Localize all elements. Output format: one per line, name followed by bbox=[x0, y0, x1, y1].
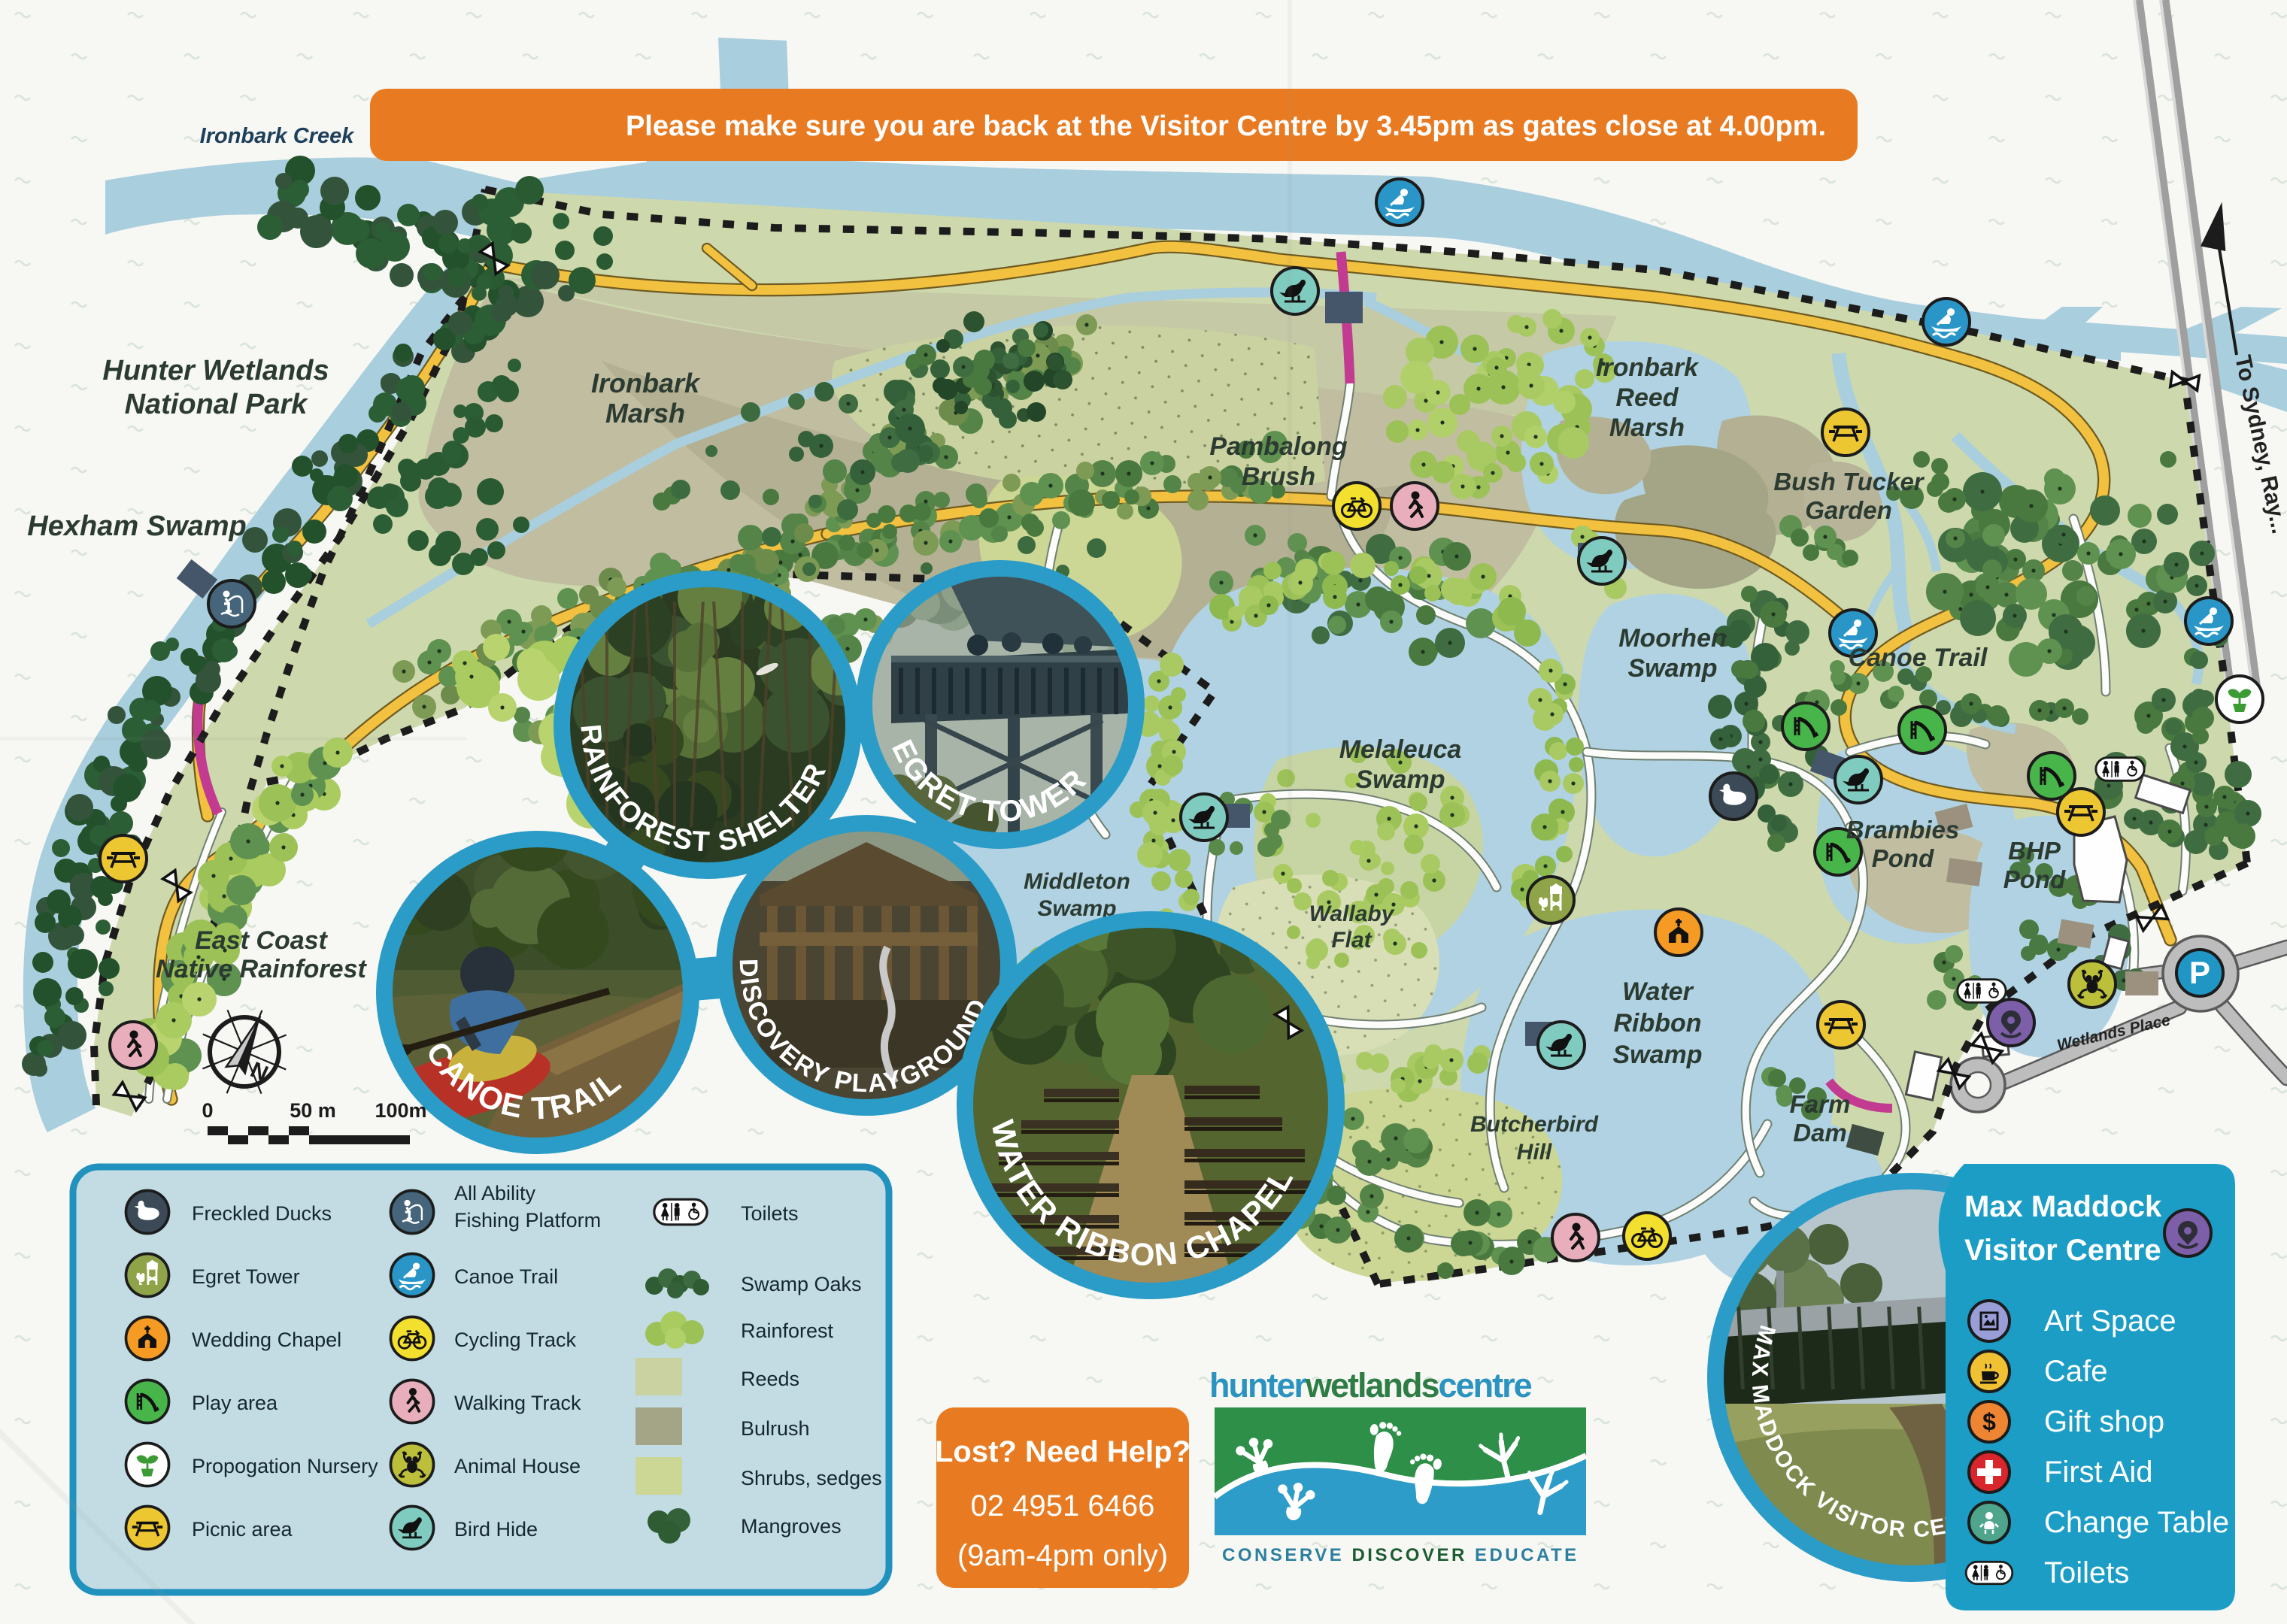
svg-text:Bird Hide: Bird Hide bbox=[454, 1518, 538, 1541]
svg-text:Swamp: Swamp bbox=[1612, 1041, 1702, 1069]
svg-text:Play area: Play area bbox=[192, 1392, 278, 1414]
svg-text:Native Rainforest: Native Rainforest bbox=[156, 955, 367, 983]
svg-text:Farm: Farm bbox=[1790, 1090, 1851, 1118]
svg-text:Shrubs, sedges: Shrubs, sedges bbox=[741, 1467, 882, 1489]
svg-text:Wallaby: Wallaby bbox=[1309, 901, 1395, 926]
svg-text:Reed: Reed bbox=[1615, 383, 1679, 412]
svg-text:Mangroves: Mangroves bbox=[741, 1515, 842, 1538]
svg-text:Egret Tower: Egret Tower bbox=[192, 1265, 300, 1288]
svg-text:Change Table: Change Table bbox=[2044, 1506, 2229, 1539]
svg-text:100m: 100m bbox=[375, 1099, 426, 1122]
svg-text:Toilets: Toilets bbox=[2044, 1556, 2129, 1589]
svg-text:Marsh: Marsh bbox=[605, 398, 685, 429]
svg-text:Freckled Ducks: Freckled Ducks bbox=[192, 1202, 332, 1225]
svg-text:Melaleuca: Melaleuca bbox=[1339, 735, 1462, 764]
svg-text:Swamp Oaks: Swamp Oaks bbox=[741, 1273, 862, 1295]
svg-text:Swamp: Swamp bbox=[1355, 765, 1445, 794]
svg-text:Water: Water bbox=[1622, 977, 1694, 1006]
svg-text:Brambies: Brambies bbox=[1846, 816, 1959, 844]
svg-text:Middleton: Middleton bbox=[1024, 869, 1130, 894]
svg-text:Bush Tucker: Bush Tucker bbox=[1773, 468, 1925, 495]
svg-text:Visitor Centre: Visitor Centre bbox=[1964, 1234, 2161, 1267]
svg-text:Max Maddock: Max Maddock bbox=[1964, 1190, 2162, 1223]
svg-text:Moorhen: Moorhen bbox=[1618, 624, 1727, 653]
svg-text:50 m: 50 m bbox=[290, 1099, 336, 1122]
svg-text:CONSERVE DISCOVER EDUCATE: CONSERVE DISCOVER EDUCATE bbox=[1222, 1545, 1579, 1565]
svg-text:Toilets: Toilets bbox=[741, 1202, 799, 1225]
svg-text:Reeds: Reeds bbox=[741, 1368, 799, 1390]
svg-text:Wedding Chapel: Wedding Chapel bbox=[192, 1329, 341, 1351]
svg-text:Flat: Flat bbox=[1331, 928, 1373, 953]
svg-text:hunterwetlandscentre: hunterwetlandscentre bbox=[1209, 1366, 1532, 1404]
svg-text:Pambalong: Pambalong bbox=[1209, 432, 1347, 461]
svg-text:All Ability: All Ability bbox=[454, 1182, 536, 1204]
svg-text:Garden: Garden bbox=[1805, 496, 1892, 524]
svg-text:Pond: Pond bbox=[2003, 865, 2066, 893]
svg-text:Swamp: Swamp bbox=[1627, 654, 1717, 683]
svg-text:Ribbon: Ribbon bbox=[1613, 1009, 1701, 1038]
svg-text:Propogation Nursery: Propogation Nursery bbox=[192, 1455, 378, 1477]
svg-text:Ironbark: Ironbark bbox=[591, 368, 701, 398]
svg-text:Bulrush: Bulrush bbox=[741, 1417, 810, 1440]
svg-text:National Park: National Park bbox=[125, 389, 309, 420]
svg-text:Art Space: Art Space bbox=[2044, 1304, 2176, 1338]
svg-text:Dam: Dam bbox=[1793, 1119, 1847, 1147]
svg-text:BHP: BHP bbox=[2008, 837, 2061, 865]
svg-text:Hill: Hill bbox=[1517, 1140, 1552, 1165]
svg-text:Hunter Wetlands: Hunter Wetlands bbox=[102, 355, 329, 386]
svg-text:Cafe: Cafe bbox=[2044, 1355, 2108, 1388]
svg-text:Pond: Pond bbox=[1872, 844, 1934, 872]
svg-text:Fishing Platform: Fishing Platform bbox=[454, 1209, 601, 1232]
svg-text:Ironbark: Ironbark bbox=[1596, 353, 1700, 382]
svg-text:Ironbark Creek: Ironbark Creek bbox=[200, 124, 356, 148]
svg-text:East Coast: East Coast bbox=[195, 926, 328, 955]
svg-text:Canoe Trail: Canoe Trail bbox=[454, 1265, 558, 1288]
svg-text:Cycling Track: Cycling Track bbox=[454, 1329, 577, 1351]
svg-text:Lost? Need Help?: Lost? Need Help? bbox=[935, 1435, 1191, 1468]
svg-text:Walking Track: Walking Track bbox=[454, 1392, 581, 1414]
svg-text:Picnic area: Picnic area bbox=[192, 1518, 293, 1541]
svg-text:Animal House: Animal House bbox=[454, 1455, 581, 1477]
svg-text:Canoe Trail: Canoe Trail bbox=[1849, 644, 1988, 672]
svg-text:Please make sure you are back: Please make sure you are back at the Vis… bbox=[626, 111, 1826, 142]
svg-text:0: 0 bbox=[202, 1099, 213, 1122]
svg-text:(9am-4pm only): (9am-4pm only) bbox=[957, 1539, 1168, 1572]
svg-text:Butcherbird: Butcherbird bbox=[1470, 1112, 1599, 1137]
svg-text:Brush: Brush bbox=[1242, 462, 1315, 491]
svg-text:Hexham Swamp: Hexham Swamp bbox=[27, 511, 246, 542]
svg-text:Rainforest: Rainforest bbox=[741, 1319, 834, 1342]
svg-text:First Aid: First Aid bbox=[2044, 1456, 2152, 1489]
svg-text:02 4951 6466: 02 4951 6466 bbox=[971, 1489, 1155, 1522]
svg-text:Gift shop: Gift shop bbox=[2044, 1405, 2164, 1438]
svg-text:Marsh: Marsh bbox=[1609, 414, 1685, 442]
